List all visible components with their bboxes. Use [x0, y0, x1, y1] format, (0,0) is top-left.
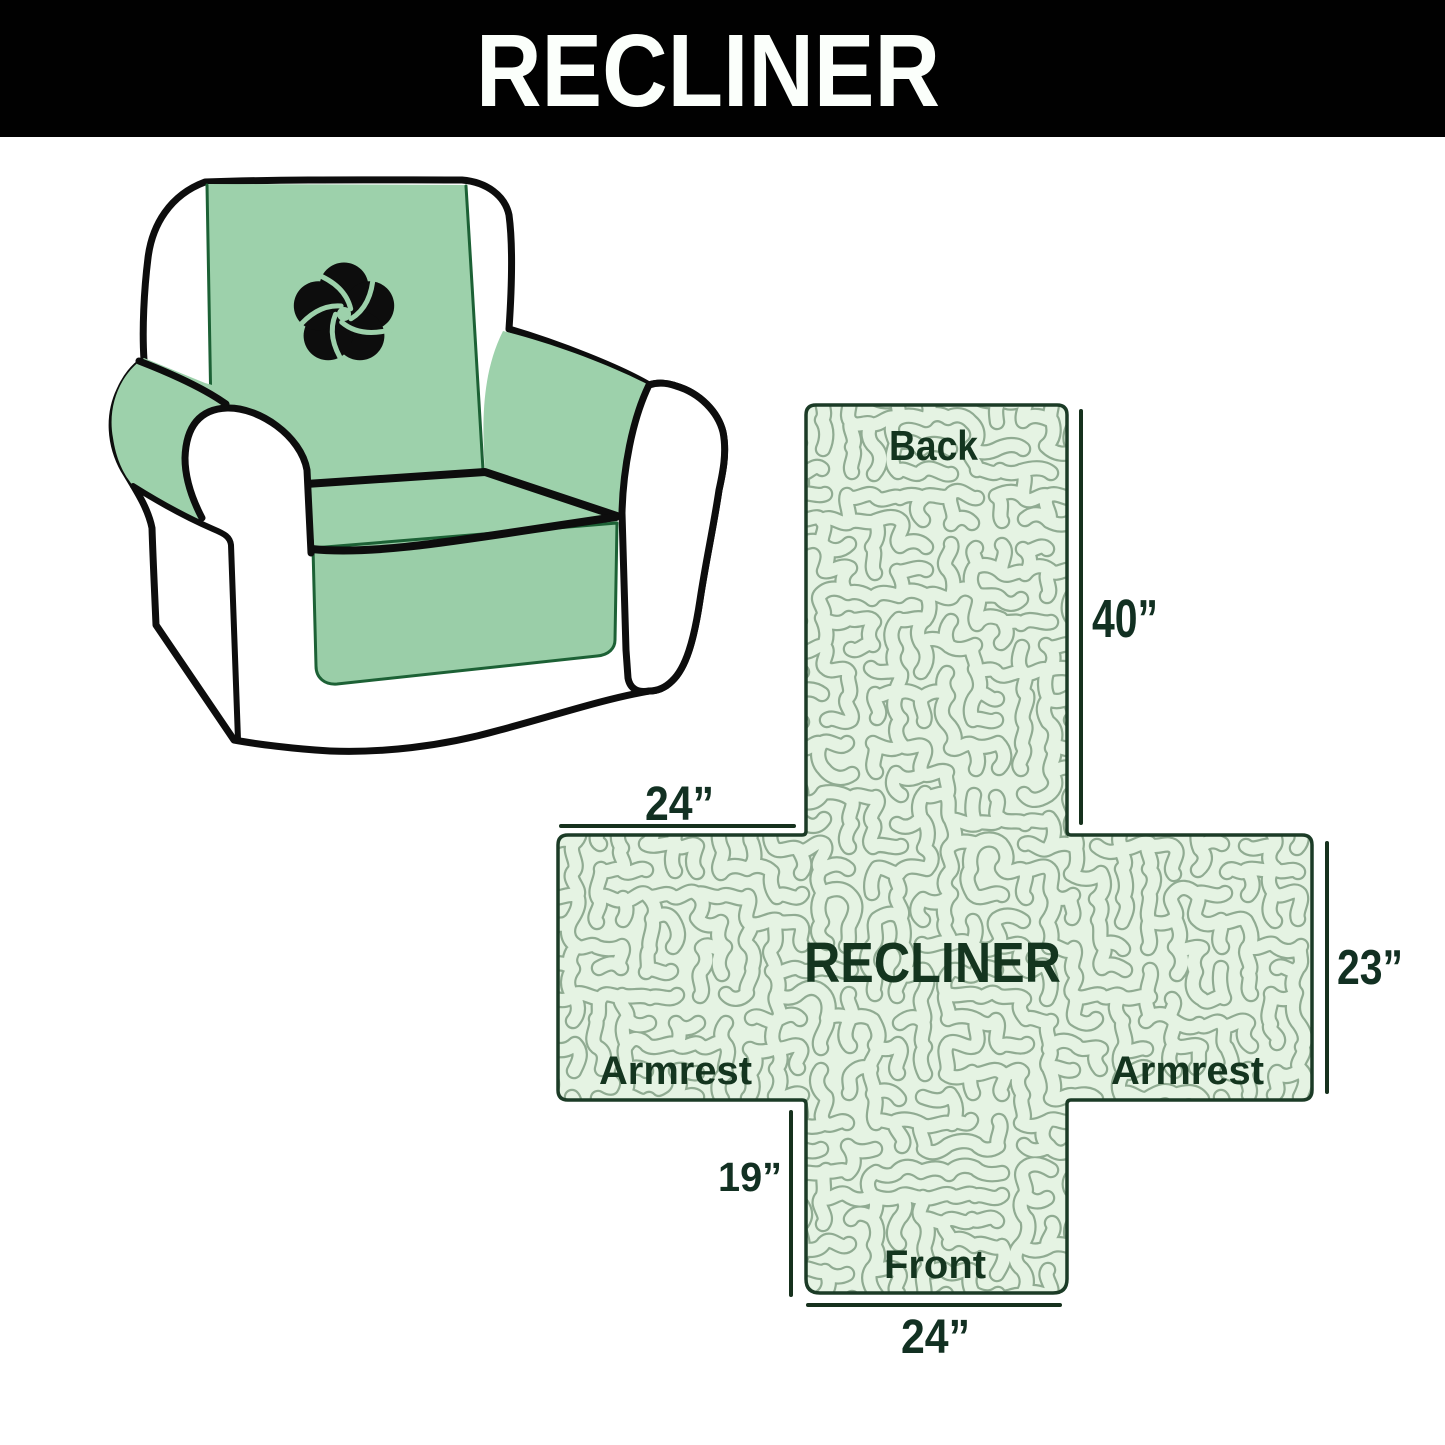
svg-text:19”: 19”: [718, 1154, 782, 1200]
svg-text:Back: Back: [889, 422, 979, 469]
svg-text:24”: 24”: [645, 778, 714, 831]
svg-text:40”: 40”: [1092, 589, 1158, 649]
svg-text:Armrest: Armrest: [599, 1049, 752, 1093]
svg-text:RECLINER: RECLINER: [476, 13, 940, 128]
svg-text:RECLINER: RECLINER: [804, 931, 1061, 995]
svg-text:24”: 24”: [901, 1311, 970, 1364]
svg-text:23”: 23”: [1337, 941, 1403, 995]
svg-text:Armrest: Armrest: [1111, 1049, 1264, 1093]
svg-text:Front: Front: [884, 1243, 986, 1287]
